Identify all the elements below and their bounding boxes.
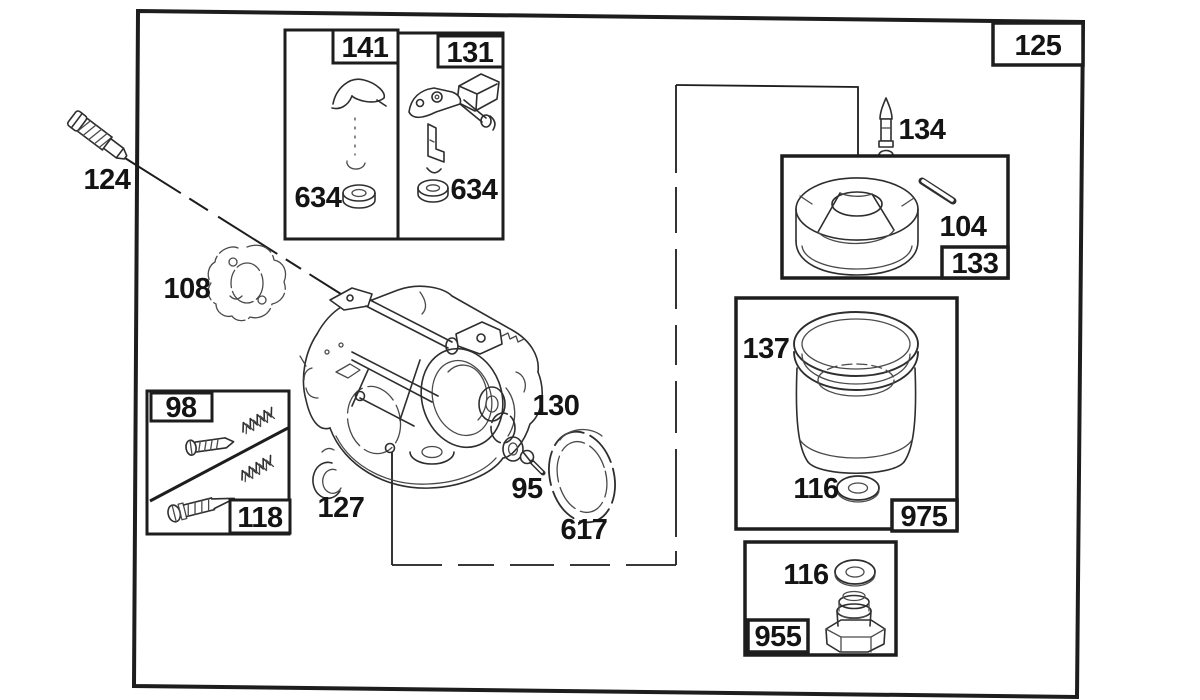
callout-116-drain: 116 bbox=[783, 559, 829, 591]
callout-116-bowl: 116 bbox=[793, 473, 839, 505]
inset-box-133: 104 133 bbox=[782, 156, 1008, 280]
callout-617: 617 bbox=[561, 514, 608, 546]
inset-box-955: 116 955 bbox=[745, 542, 896, 655]
label-98: 98 bbox=[165, 392, 197, 424]
callout-634-right: 634 bbox=[451, 174, 498, 206]
label-133: 133 bbox=[952, 248, 999, 280]
label-141: 141 bbox=[342, 32, 389, 64]
gasket-108-drawing bbox=[208, 245, 285, 320]
bowl-screw-95-drawing bbox=[521, 451, 544, 474]
mounting-screw-124-drawing bbox=[67, 110, 131, 165]
callout-95: 95 bbox=[511, 473, 543, 505]
callout-127: 127 bbox=[318, 492, 365, 524]
callout-134: 134 bbox=[899, 114, 946, 146]
parts-diagram-page: 125 141 634 bbox=[0, 0, 1200, 700]
callout-125-label: 125 bbox=[1015, 30, 1062, 62]
seal-127-drawing bbox=[313, 448, 341, 498]
callout-104: 104 bbox=[940, 211, 987, 243]
callout-box-125: 125 bbox=[993, 23, 1083, 65]
float-box-leader-line bbox=[676, 85, 858, 156]
callout-124: 124 bbox=[84, 164, 131, 196]
exploded-parts-diagram: 125 141 634 bbox=[0, 0, 1200, 700]
inset-box-141: 141 634 bbox=[285, 30, 398, 239]
inset-box-98-118: 98 118 bbox=[147, 391, 290, 534]
label-975: 975 bbox=[901, 501, 948, 533]
inset-box-975: 137 116 975 bbox=[736, 298, 957, 533]
callout-634-left: 634 bbox=[295, 182, 342, 214]
callout-137: 137 bbox=[743, 333, 790, 365]
label-131: 131 bbox=[447, 37, 494, 69]
label-955: 955 bbox=[755, 621, 802, 653]
label-118: 118 bbox=[237, 502, 283, 534]
inset-box-131: 131 634 bbox=[398, 33, 503, 239]
callout-130: 130 bbox=[533, 390, 580, 422]
callout-108: 108 bbox=[164, 273, 211, 305]
